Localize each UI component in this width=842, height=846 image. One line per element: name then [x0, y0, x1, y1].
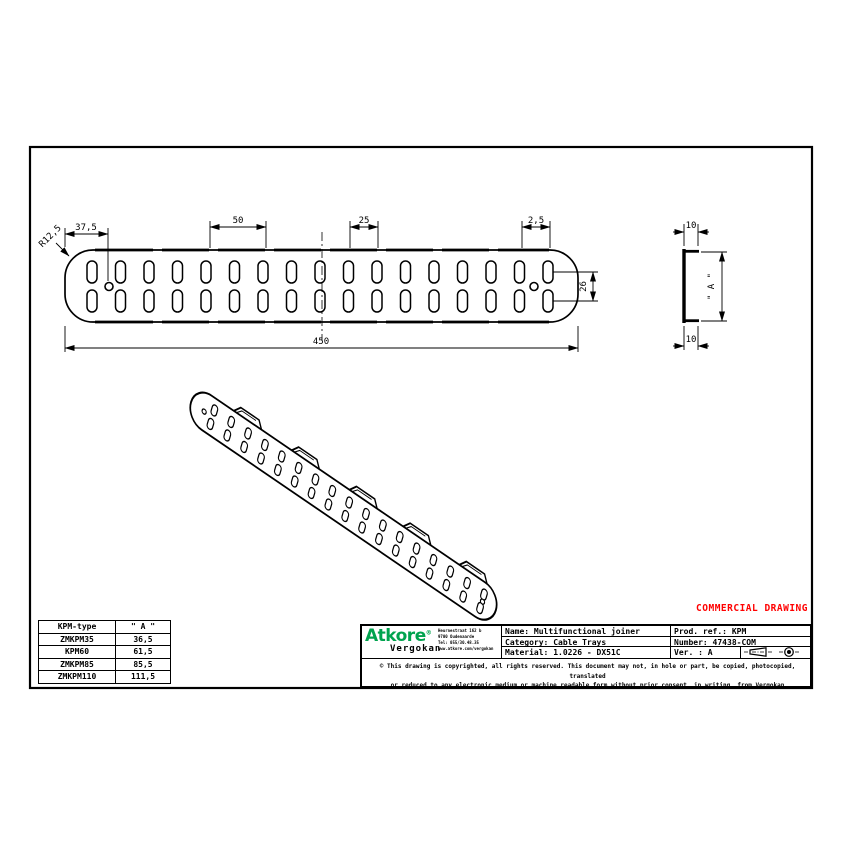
svg-text:25: 25 [359, 216, 370, 226]
dim-end-radius: R12,5 [37, 223, 69, 256]
svg-text:10: 10 [686, 221, 697, 231]
table-row: ZMKPM35 36,5 [39, 633, 171, 646]
iso-view [186, 378, 503, 627]
brand-address: Heurnestraat 162 b 9700 Oudenaarde Tel: … [438, 628, 500, 652]
dim-tab-offset: 2,5 [522, 216, 550, 248]
table-row: ZMKPM110 111,5 [39, 671, 171, 684]
dim-slot-pitch-double: 50 [210, 216, 266, 248]
col-header-type: KPM-type [39, 621, 116, 634]
left-round-hole [105, 283, 113, 291]
field-label: Category: [505, 638, 548, 647]
field-value: KPM [732, 627, 746, 636]
right-round-hole [530, 283, 538, 291]
table-row: ZMKPM85 85,5 [39, 658, 171, 671]
col-header-a: " A " [116, 621, 171, 634]
field-label: Number: [674, 638, 708, 647]
field-label: Prod. ref.: [674, 627, 727, 636]
table-header-row: KPM-type " A " [39, 621, 171, 634]
address-line: www.atkore.com/vergokan [438, 646, 500, 652]
field-label: Name: [505, 627, 529, 636]
dim-flange-bottom: 10 [673, 326, 709, 350]
field-value: Cable Trays [553, 638, 606, 647]
registered-mark: ® [426, 629, 432, 636]
projection-symbol-cell [740, 647, 812, 658]
field-material: Material: 1.0226 - DX51C [502, 647, 670, 658]
dim-profile-height: " A " [701, 252, 727, 321]
title-block: Atkore® Vergokan Heurnestraat 162 b 9700… [360, 624, 812, 688]
svg-text:2,5: 2,5 [528, 216, 544, 226]
first-angle-projection-icon [741, 647, 811, 657]
field-value: 1.0226 - DX51C [553, 648, 620, 657]
svg-text:26: 26 [579, 281, 589, 292]
svg-text:R12,5: R12,5 [37, 223, 63, 249]
svg-text:37,5: 37,5 [75, 223, 97, 233]
cell-a: 111,5 [116, 671, 171, 684]
dim-total-length: 450 [65, 326, 578, 352]
iso-tabs [233, 404, 490, 585]
field-label: Ver. : [674, 648, 703, 657]
cell-type: ZMKPM85 [39, 658, 116, 671]
field-value: A [708, 648, 713, 657]
brand-cell: Atkore® Vergokan Heurnestraat 162 b 9700… [362, 626, 502, 658]
field-category: Category: Cable Trays [502, 637, 670, 648]
vergokan-logo: Vergokan [390, 644, 441, 654]
field-label: Material: [505, 648, 548, 657]
dim-flange-top: 10 [673, 221, 709, 246]
cell-a: 36,5 [116, 633, 171, 646]
drawing-canvas: 37,5 R12,5 50 25 2,5 450 [0, 0, 842, 842]
cell-type: ZMKPM35 [39, 633, 116, 646]
copyright-notice: © This drawing is copyrighted, all right… [362, 658, 810, 687]
field-value: 47438-COM [713, 638, 756, 647]
svg-text:10: 10 [686, 335, 697, 345]
svg-text:450: 450 [313, 337, 329, 347]
dim-slot-pitch: 25 [350, 216, 378, 248]
svg-text:50: 50 [233, 216, 244, 226]
field-version: Ver. : A [670, 647, 740, 658]
copyright-line: © This drawing is copyrighted, all right… [365, 662, 810, 681]
cell-type: KPM60 [39, 646, 116, 659]
copyright-line: or reduced to any electronic medium or m… [365, 681, 810, 687]
field-value: Multifunctional joiner [534, 627, 640, 636]
cell-a: 85,5 [116, 658, 171, 671]
cell-a: 61,5 [116, 646, 171, 659]
side-view: 10 10 " A " [673, 221, 727, 350]
field-name: Name: Multifunctional joiner [502, 626, 670, 637]
top-view: 37,5 R12,5 50 25 2,5 450 [37, 216, 598, 352]
cell-type: ZMKPM110 [39, 671, 116, 684]
atkore-logo: Atkore® [365, 626, 431, 646]
svg-text:" A ": " A " [707, 273, 717, 300]
commercial-drawing-watermark: COMMERCIAL DRAWING [600, 603, 808, 614]
kpm-size-table: KPM-type " A " ZMKPM35 36,5 KPM60 61,5 Z… [38, 620, 171, 684]
field-prod-ref: Prod. ref.: KPM [670, 626, 812, 637]
table-row: KPM60 61,5 [39, 646, 171, 659]
field-number: Number: 47438-COM [670, 637, 812, 648]
